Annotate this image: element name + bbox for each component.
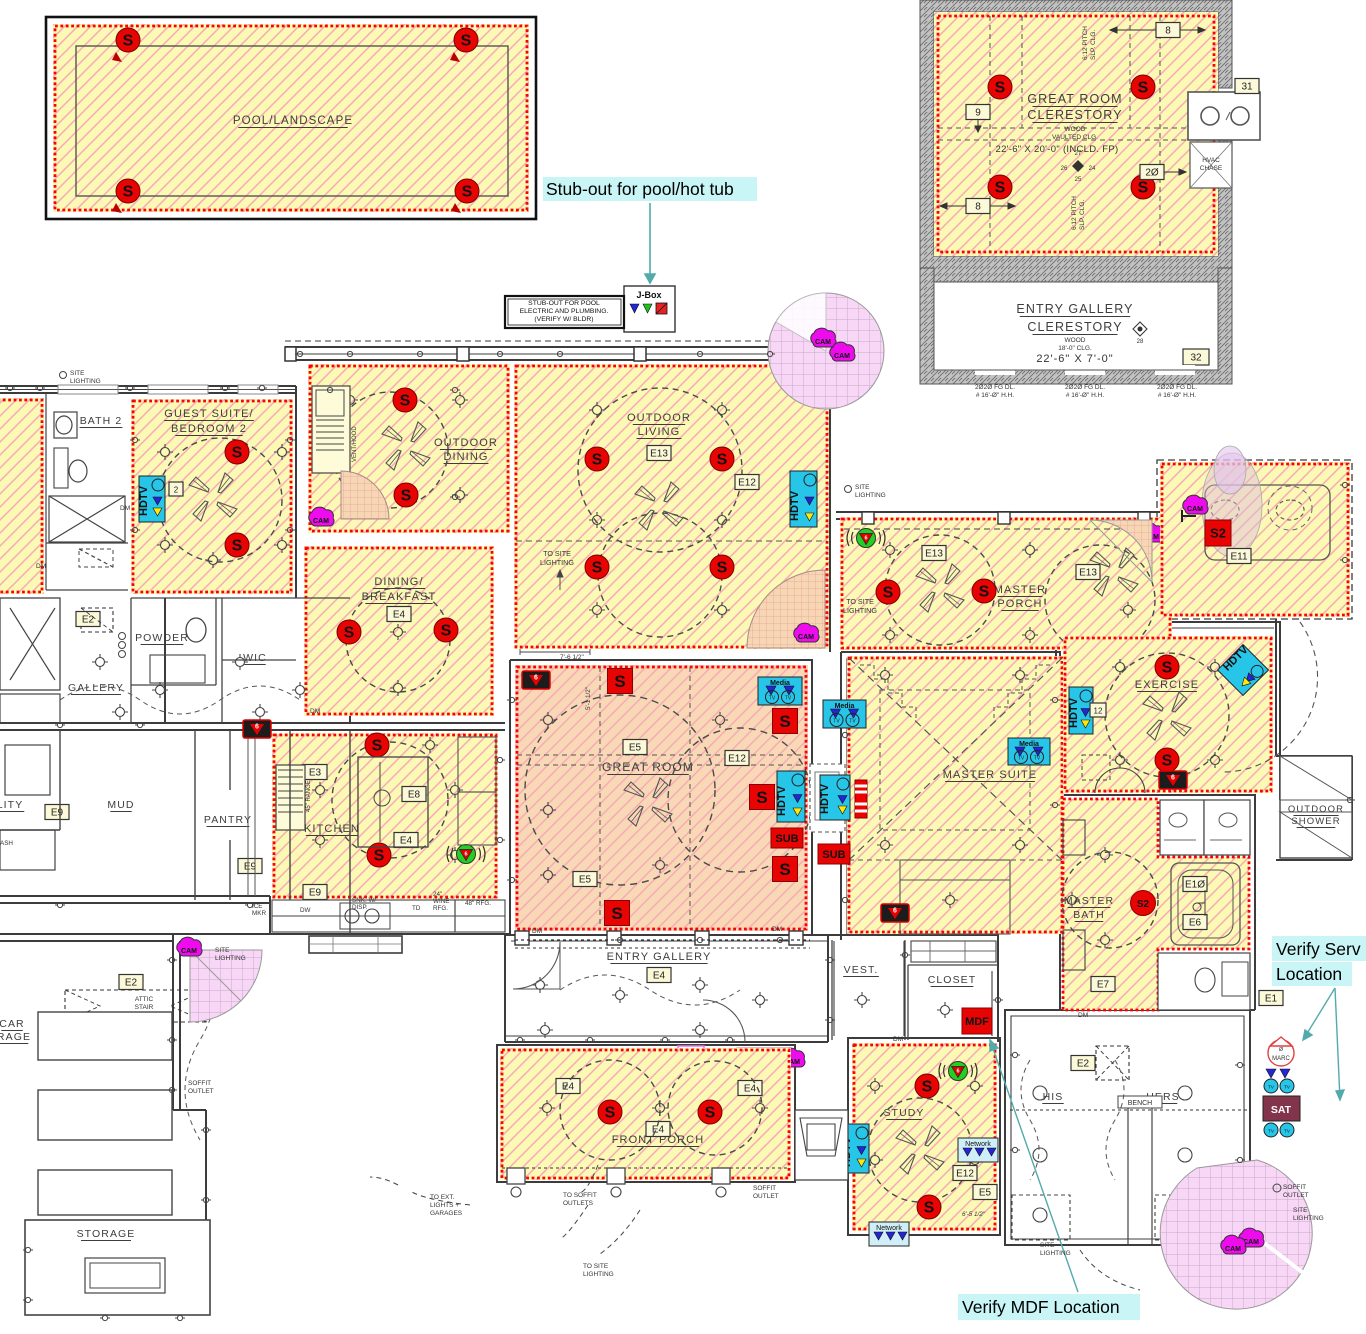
svg-text:TO SOFFIT: TO SOFFIT bbox=[563, 1192, 597, 1199]
svg-text:RFG.: RFG. bbox=[433, 905, 448, 912]
svg-text:STAIR: STAIR bbox=[135, 1004, 154, 1011]
svg-text:26: 26 bbox=[1061, 166, 1068, 172]
svg-text:BREAKFAST: BREAKFAST bbox=[362, 591, 437, 603]
svg-text:DM: DM bbox=[1078, 1012, 1088, 1019]
svg-text:22'-6" X 20'-0" (INCLD. FP): 22'-6" X 20'-0" (INCLD. FP) bbox=[995, 144, 1118, 155]
svg-text:2Ø2Ø FG DL.: 2Ø2Ø FG DL. bbox=[1065, 384, 1105, 391]
svg-text:KITCHEN: KITCHEN bbox=[304, 823, 360, 835]
svg-text:S: S bbox=[611, 904, 622, 923]
svg-text:SOFFIT: SOFFIT bbox=[1283, 1184, 1306, 1191]
svg-text:E9: E9 bbox=[309, 888, 322, 899]
svg-text:LIGHTING: LIGHTING bbox=[540, 558, 574, 567]
svg-text:WOOD: WOOD bbox=[1065, 337, 1086, 344]
svg-text:LIGHTING: LIGHTING bbox=[1293, 1215, 1324, 1222]
svg-text:MASTER SUITE: MASTER SUITE bbox=[943, 769, 1038, 781]
svg-text:E13: E13 bbox=[1079, 568, 1097, 579]
svg-text:WOOD: WOOD bbox=[1065, 126, 1086, 133]
svg-text:E13: E13 bbox=[650, 449, 668, 460]
svg-text:LIGHTING: LIGHTING bbox=[855, 492, 886, 499]
svg-text:GARAGES: GARAGES bbox=[430, 1210, 463, 1217]
svg-text:45" RANGE: 45" RANGE bbox=[306, 780, 312, 812]
svg-text:2: 2 bbox=[174, 486, 179, 495]
svg-text:8: 8 bbox=[975, 202, 981, 213]
svg-text:WINE: WINE bbox=[433, 898, 449, 905]
svg-text:31: 31 bbox=[1241, 82, 1253, 93]
svg-text:ELECTRIC AND PLUMBING.: ELECTRIC AND PLUMBING. bbox=[520, 308, 609, 315]
svg-text:TV: TV bbox=[1034, 756, 1041, 762]
svg-text:GREAT ROOM: GREAT ROOM bbox=[602, 760, 694, 774]
svg-text:SUB: SUB bbox=[822, 849, 845, 861]
svg-text:DINING/: DINING/ bbox=[374, 576, 423, 588]
svg-text:LITY: LITY bbox=[0, 799, 23, 811]
svg-text:TV: TV bbox=[1018, 756, 1025, 762]
svg-text:VAULTED CLG.: VAULTED CLG. bbox=[1052, 134, 1098, 141]
svg-text:E4: E4 bbox=[400, 836, 413, 847]
svg-text:MUD: MUD bbox=[107, 799, 134, 811]
svg-text:DM: DM bbox=[310, 708, 320, 715]
svg-text:TV: TV bbox=[785, 696, 792, 702]
svg-text:Stub-out for pool/hot tub: Stub-out for pool/hot tub bbox=[546, 179, 734, 199]
svg-text:E7: E7 bbox=[1097, 980, 1110, 991]
svg-text:SITE: SITE bbox=[215, 947, 230, 954]
svg-text:VEST.: VEST. bbox=[844, 964, 879, 976]
svg-text:DM: DM bbox=[893, 1036, 903, 1043]
svg-text:E5: E5 bbox=[979, 1188, 992, 1199]
svg-text:DM: DM bbox=[532, 928, 542, 935]
svg-text:E12: E12 bbox=[728, 754, 746, 765]
svg-text:2Ø2Ø FG DL.: 2Ø2Ø FG DL. bbox=[1157, 384, 1197, 391]
svg-text:STUB-OUT FOR POOL: STUB-OUT FOR POOL bbox=[528, 300, 600, 307]
svg-text:LIVING: LIVING bbox=[638, 426, 681, 438]
svg-text:7'-6 1/2": 7'-6 1/2" bbox=[560, 654, 584, 661]
svg-text:TV: TV bbox=[1268, 1129, 1274, 1134]
svg-text:5'-1 1/2": 5'-1 1/2" bbox=[585, 687, 592, 710]
svg-text:E4: E4 bbox=[744, 1084, 757, 1095]
svg-text:LIGHTING: LIGHTING bbox=[843, 606, 877, 615]
svg-text:VENT/HOOD: VENT/HOOD bbox=[352, 426, 358, 462]
svg-text:ENTRY GALLERY: ENTRY GALLERY bbox=[607, 951, 712, 963]
svg-text:S2: S2 bbox=[1137, 899, 1150, 910]
svg-text:TV: TV bbox=[833, 719, 840, 725]
svg-text:STUDY: STUDY bbox=[883, 1107, 924, 1119]
svg-text:POOL/LANDSCAPE: POOL/LANDSCAPE bbox=[233, 115, 353, 127]
svg-text:TO EXT.: TO EXT. bbox=[430, 1194, 455, 1201]
svg-text:BENCH: BENCH bbox=[1128, 1100, 1153, 1107]
svg-text:CLERESTORY: CLERESTORY bbox=[1027, 108, 1122, 122]
svg-text:BEDROOM 2: BEDROOM 2 bbox=[171, 423, 247, 435]
svg-text:E13: E13 bbox=[925, 549, 943, 560]
svg-text:SITE: SITE bbox=[70, 370, 85, 377]
svg-text:MARC: MARC bbox=[1272, 1056, 1290, 1062]
svg-text:6'-5 1/2": 6'-5 1/2" bbox=[962, 1211, 986, 1218]
svg-text:(VERIFY W/ BLDR): (VERIFY W/ BLDR) bbox=[534, 316, 593, 323]
svg-text:HDTV: HDTV bbox=[819, 783, 831, 814]
svg-text:PANTRY: PANTRY bbox=[204, 814, 252, 826]
svg-text:HVAC: HVAC bbox=[1202, 157, 1220, 164]
svg-text:DINING: DINING bbox=[443, 451, 488, 463]
svg-text:SLP. CLG.: SLP. CLG. bbox=[1090, 30, 1097, 60]
svg-text:PORCH: PORCH bbox=[997, 598, 1042, 610]
svg-text:LIGHTS +: LIGHTS + bbox=[430, 1202, 459, 1209]
svg-text:24": 24" bbox=[433, 891, 442, 898]
svg-text:TD: TD bbox=[412, 905, 421, 912]
svg-text:E4: E4 bbox=[562, 1082, 575, 1093]
svg-text:8: 8 bbox=[1165, 26, 1171, 37]
svg-text:ICE: ICE bbox=[252, 903, 263, 910]
svg-text:MASTER: MASTER bbox=[994, 584, 1046, 596]
svg-text:TO SITE: TO SITE bbox=[583, 1263, 609, 1270]
svg-text:OUTDOOR: OUTDOOR bbox=[434, 437, 498, 449]
svg-text:E4: E4 bbox=[393, 610, 406, 621]
svg-text:2Ø2Ø FG DL.: 2Ø2Ø FG DL. bbox=[975, 384, 1015, 391]
svg-text:SITE: SITE bbox=[1293, 1207, 1308, 1214]
svg-text:LIGHTING: LIGHTING bbox=[215, 955, 246, 962]
svg-text:TV: TV bbox=[1284, 1085, 1290, 1090]
svg-text:Network: Network bbox=[876, 1225, 902, 1232]
svg-text:EXERCISE: EXERCISE bbox=[1135, 679, 1199, 691]
svg-text:SLP. CLG.: SLP. CLG. bbox=[1079, 200, 1086, 230]
svg-text:OUTLETS: OUTLETS bbox=[563, 1200, 594, 1207]
svg-text:S: S bbox=[614, 672, 625, 691]
svg-text:SAT: SAT bbox=[1271, 1104, 1292, 1116]
svg-text:E8: E8 bbox=[408, 790, 421, 801]
svg-text:MDF: MDF bbox=[965, 1016, 989, 1028]
svg-text:OUTDOOR: OUTDOOR bbox=[627, 412, 691, 424]
svg-text:E5: E5 bbox=[629, 743, 642, 754]
svg-text:S2: S2 bbox=[1210, 526, 1226, 541]
svg-text:24: 24 bbox=[1089, 166, 1096, 172]
svg-text:TV: TV bbox=[769, 696, 776, 702]
svg-text:DM: DM bbox=[120, 505, 130, 512]
svg-text:BATH: BATH bbox=[1073, 909, 1105, 921]
svg-text:25: 25 bbox=[1075, 177, 1082, 183]
svg-text:DM: DM bbox=[772, 926, 782, 933]
svg-text:E6: E6 bbox=[1189, 918, 1202, 929]
svg-text:J-Box: J-Box bbox=[636, 290, 661, 300]
svg-text:# 16'-Ø" H.H.: # 16'-Ø" H.H. bbox=[976, 392, 1014, 399]
svg-text:HDTV: HDTV bbox=[776, 785, 788, 816]
svg-text:OUTLET: OUTLET bbox=[1283, 1192, 1309, 1199]
svg-text:MKR: MKR bbox=[252, 910, 266, 917]
svg-text:E12: E12 bbox=[738, 478, 756, 489]
svg-text:TV: TV bbox=[1268, 1085, 1274, 1090]
svg-text:SOFFIT: SOFFIT bbox=[188, 1080, 211, 1087]
svg-text:CAR: CAR bbox=[0, 1018, 25, 1030]
svg-text:DW: DW bbox=[300, 907, 311, 914]
svg-text:TO SITE: TO SITE bbox=[543, 549, 571, 558]
svg-text:S: S bbox=[779, 712, 790, 731]
svg-text:E1Ø: E1Ø bbox=[1185, 880, 1205, 891]
svg-text:OUTLET: OUTLET bbox=[188, 1088, 214, 1095]
svg-text:# 16'-Ø" H.H.: # 16'-Ø" H.H. bbox=[1066, 392, 1104, 399]
svg-text:POWDER: POWDER bbox=[135, 632, 189, 644]
svg-text:Verify Serv: Verify Serv bbox=[1276, 939, 1361, 959]
svg-text:E11: E11 bbox=[1230, 552, 1247, 563]
svg-text:Network: Network bbox=[965, 1141, 991, 1148]
svg-text:SHOWER: SHOWER bbox=[1291, 816, 1340, 827]
svg-text:6:12 PITCH: 6:12 PITCH bbox=[1071, 196, 1078, 230]
svg-text:Ø: Ø bbox=[1279, 1047, 1284, 1053]
svg-text:CLOSET: CLOSET bbox=[928, 974, 977, 986]
svg-text:HDTV: HDTV bbox=[1068, 697, 1080, 728]
svg-text:TO SITE: TO SITE bbox=[846, 597, 874, 606]
svg-text:CLERESTORY: CLERESTORY bbox=[1027, 320, 1122, 334]
svg-text:27: 27 bbox=[1075, 151, 1082, 157]
svg-text:E1: E1 bbox=[1265, 994, 1278, 1005]
svg-text:LIGHTING: LIGHTING bbox=[583, 1271, 614, 1278]
svg-text:E5: E5 bbox=[579, 875, 592, 886]
svg-text:E3: E3 bbox=[309, 768, 322, 779]
svg-text:SOFFIT: SOFFIT bbox=[753, 1185, 776, 1192]
svg-text:OUTDOOR: OUTDOOR bbox=[1288, 804, 1344, 815]
svg-text:BATH 2: BATH 2 bbox=[80, 415, 123, 427]
svg-text:# 16'-Ø" H.H.: # 16'-Ø" H.H. bbox=[1158, 392, 1196, 399]
svg-text:GUEST SUITE/: GUEST SUITE/ bbox=[164, 408, 253, 420]
svg-text:LIGHTING: LIGHTING bbox=[70, 378, 101, 385]
svg-text:E4: E4 bbox=[653, 971, 666, 982]
svg-text:6:12 PITCH: 6:12 PITCH bbox=[1082, 26, 1089, 60]
svg-text:STORAGE: STORAGE bbox=[77, 1228, 136, 1240]
svg-text:ATTIC: ATTIC bbox=[135, 996, 154, 1003]
svg-text:HDTV: HDTV bbox=[789, 490, 801, 521]
svg-text:HDTV: HDTV bbox=[138, 485, 150, 516]
svg-text:Verify MDF Location: Verify MDF Location bbox=[962, 1297, 1120, 1317]
svg-text:28: 28 bbox=[1137, 339, 1144, 345]
svg-text:ENTRY GALLERY: ENTRY GALLERY bbox=[1016, 302, 1133, 316]
svg-text:SUB: SUB bbox=[775, 833, 798, 845]
svg-text:Location: Location bbox=[1276, 964, 1342, 984]
svg-text:E12: E12 bbox=[956, 1169, 974, 1180]
svg-text:TV: TV bbox=[1284, 1129, 1290, 1134]
svg-text:E2: E2 bbox=[1077, 1059, 1090, 1070]
svg-text:S: S bbox=[779, 860, 790, 879]
svg-text:LIGHTING: LIGHTING bbox=[1040, 1250, 1071, 1257]
svg-text:ASH: ASH bbox=[0, 840, 13, 847]
svg-text:12: 12 bbox=[1094, 707, 1103, 716]
svg-text:CHASE: CHASE bbox=[1200, 165, 1223, 172]
svg-text:48" RFG.: 48" RFG. bbox=[465, 900, 491, 907]
svg-text:SITE: SITE bbox=[1040, 1242, 1055, 1249]
svg-text:TV: TV bbox=[849, 719, 856, 725]
svg-text:E2: E2 bbox=[82, 615, 95, 626]
svg-text:2Ø: 2Ø bbox=[1145, 168, 1159, 179]
svg-text:9: 9 bbox=[975, 108, 981, 119]
svg-text:DM: DM bbox=[36, 563, 46, 570]
svg-text:E2: E2 bbox=[125, 978, 138, 989]
svg-text:GREAT ROOM: GREAT ROOM bbox=[1027, 92, 1122, 106]
svg-text:S: S bbox=[756, 788, 767, 807]
svg-text:32: 32 bbox=[1190, 353, 1202, 364]
svg-text:E9: E9 bbox=[51, 808, 64, 819]
svg-text:SITE: SITE bbox=[855, 484, 870, 491]
svg-text:18'-0" CLG.: 18'-0" CLG. bbox=[1058, 345, 1092, 352]
svg-text:22'-6" X 7'-0": 22'-6" X 7'-0" bbox=[1036, 353, 1113, 365]
svg-text:RAGE: RAGE bbox=[0, 1031, 31, 1043]
svg-text:OUTLET: OUTLET bbox=[753, 1193, 779, 1200]
